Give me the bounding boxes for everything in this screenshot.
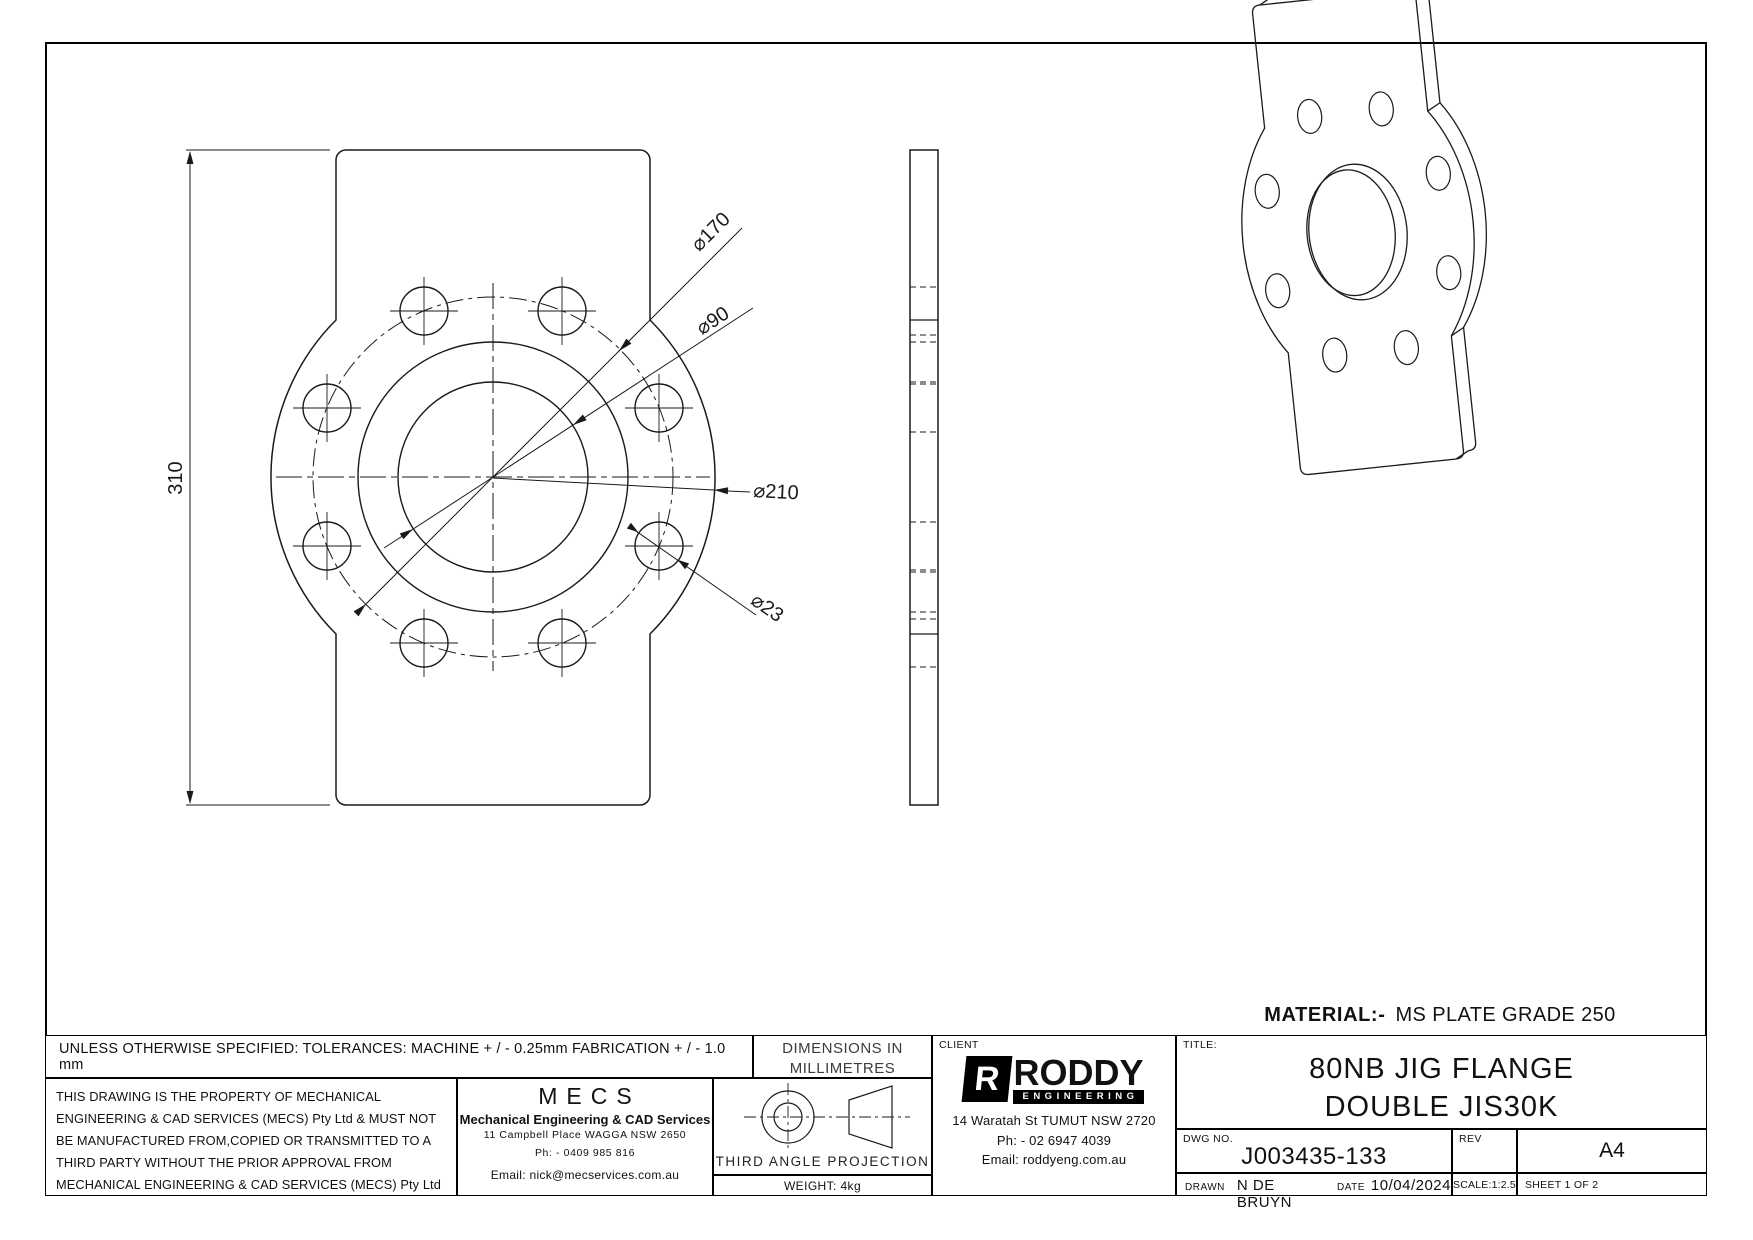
mecs-block: MECS Mechanical Engineering & CAD Servic… [457,1078,713,1196]
title-line1: 80NB JIG FLANGE [1177,1050,1706,1088]
units-note: DIMENSIONS IN MILLIMETRES [753,1035,932,1078]
roddy-logo-r: R [962,1056,1013,1102]
drawing-sheet: { "views": { "front": { "dim_height": "3… [0,0,1753,1240]
title-block: UNLESS OTHERWISE SPECIFIED: TOLERANCES: … [45,1035,1707,1196]
client-label: CLIENT [939,1039,979,1051]
material-value: MS PLATE GRADE 250 [1395,1004,1615,1026]
weight-note: WEIGHT: 4kg [713,1175,932,1196]
note-line: MECHANICAL ENGINEERING & CAD SERVICES (M… [56,1174,446,1196]
client-address: 14 Waratah St TUMUT NSW 2720 [933,1111,1175,1131]
dim-height-text: 310 [165,461,187,494]
scale-cell: SCALE:1:2.5 [1452,1173,1517,1196]
isometric-view [1218,0,1511,479]
dim-210 [493,478,750,494]
note-line: THIRD PARTY WITHOUT THE PRIOR APPROVAL F… [56,1152,446,1174]
mecs-logo: MECS [458,1083,712,1110]
dwg-no-cell: DWG NO. J003435-133 [1176,1129,1452,1173]
rev-label: REV [1459,1133,1482,1145]
iso-bolt-holes [1246,86,1470,379]
mecs-name: Mechanical Engineering & CAD Services [458,1112,712,1127]
title-label: TITLE: [1183,1039,1217,1051]
dim-od-text: ⌀210 [753,480,800,504]
client-block: CLIENT R RODDY ENGINEERING 14 Waratah St… [932,1035,1176,1196]
dim-170 [354,228,742,616]
units-line2: MILLIMETRES [754,1059,931,1079]
drawn-row: DRAWN N DE BRUYN DATE 10/04/2024 [1176,1173,1452,1196]
side-view [910,150,938,805]
material-label: MATERIAL:- [1264,1004,1385,1026]
material-note: MATERIAL:-MS PLATE GRADE 250 [1180,1004,1700,1027]
mecs-email: Email: nick@mecservices.com.au [458,1168,712,1182]
sheet-cell: SHEET 1 OF 2 [1517,1173,1707,1196]
dim-90 [384,308,753,548]
note-line: ENGINEERING & CAD SERVICES (MECS) Pty Lt… [56,1108,446,1130]
roddy-logo-subtitle: ENGINEERING [1013,1090,1143,1104]
drawn-by: N DE BRUYN [1237,1177,1311,1211]
client-phone: Ph: - 02 6947 4039 [933,1131,1175,1151]
drawn-label: DRAWN [1185,1182,1225,1193]
front-view [186,150,756,805]
dim-bcd-text: ⌀170 [687,208,735,256]
mecs-phone: Ph: - 0409 985 816 [458,1147,712,1159]
dwg-no-value: J003435-133 [1177,1143,1451,1171]
note-line: THIS DRAWING IS THE PROPERTY OF MECHANIC… [56,1086,446,1108]
client-contact: 14 Waratah St TUMUT NSW 2720 Ph: - 02 69… [933,1111,1175,1170]
third-angle-symbol [714,1079,931,1151]
dim-23 [627,523,756,615]
note-line: BE MANUFACTURED FROM,COPIED OR TRANSMITT… [56,1130,446,1152]
rev-cell: REV [1452,1129,1517,1173]
roddy-logo-name: RODDY [1013,1056,1143,1089]
dim-bore-text: ⌀90 [693,302,734,339]
title-line2: DOUBLE JIS30K [1177,1088,1706,1126]
roddy-logo: R RODDY ENGINEERING [933,1056,1175,1104]
drawing-views: 310 ⌀170 ⌀90 ⌀210 ⌀23 [0,0,1753,1035]
projection-label: THIRD ANGLE PROJECTION [714,1154,931,1169]
date-value: 10/04/2024 [1371,1177,1451,1194]
date-label: DATE [1337,1182,1365,1193]
dwg-no-label: DWG NO. [1183,1133,1233,1145]
hidden-lines [910,287,938,667]
projection-cell: THIRD ANGLE PROJECTION [713,1078,932,1175]
drawing-title: 80NB JIG FLANGE DOUBLE JIS30K [1177,1050,1706,1127]
units-line1: DIMENSIONS IN [754,1039,931,1059]
mecs-address: 11 Campbell Place WAGGA NSW 2650 [458,1129,712,1141]
client-email: Email: roddyeng.com.au [933,1150,1175,1170]
paper-size-cell: A4 [1517,1129,1707,1173]
property-note: THIS DRAWING IS THE PROPERTY OF MECHANIC… [45,1078,457,1196]
title-cell: TITLE: 80NB JIG FLANGE DOUBLE JIS30K [1176,1035,1707,1129]
tolerance-note: UNLESS OTHERWISE SPECIFIED: TOLERANCES: … [45,1035,753,1078]
dim-hole-text: ⌀23 [747,589,788,627]
